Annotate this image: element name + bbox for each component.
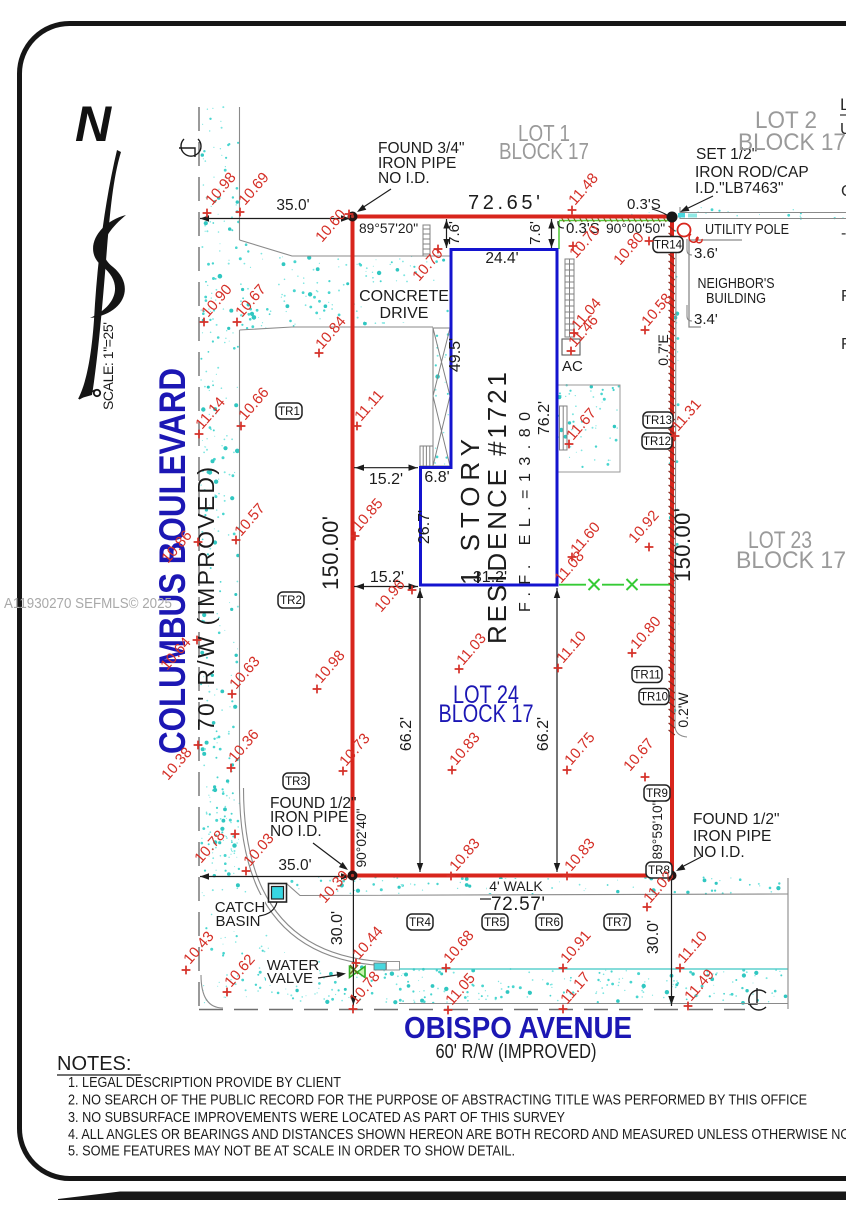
svg-text:72.57': 72.57' [491, 894, 545, 915]
svg-text:3.4': 3.4' [694, 311, 718, 328]
svg-text:TR11: TR11 [633, 670, 660, 682]
svg-text:15.2': 15.2' [369, 471, 403, 488]
svg-text:U: U [840, 121, 846, 138]
svg-text:TR5: TR5 [484, 917, 506, 929]
svg-text:6.8': 6.8' [424, 469, 449, 486]
svg-text:89°59'10": 89°59'10" [650, 800, 665, 859]
svg-text:35.0': 35.0' [276, 197, 309, 214]
svg-text:7.6': 7.6' [446, 221, 463, 245]
svg-text:66.2': 66.2' [535, 717, 552, 751]
svg-text:-: - [841, 225, 846, 242]
svg-text:35.0': 35.0' [278, 857, 311, 874]
svg-text:TR14: TR14 [654, 240, 683, 252]
svg-text:76.2': 76.2' [536, 401, 553, 435]
svg-text:TR3: TR3 [285, 776, 307, 788]
svg-text:0.7'E: 0.7'E [655, 334, 671, 365]
svg-text:IRON ROD/CAP: IRON ROD/CAP [695, 164, 809, 181]
svg-text:7.6': 7.6' [527, 221, 544, 245]
svg-text:CONCRETE: CONCRETE [359, 288, 449, 305]
svg-text:2. NO SEARCH OF THE PUBLIC REC: 2. NO SEARCH OF THE PUBLIC RECORD FOR TH… [68, 1093, 807, 1109]
svg-text:66.2': 66.2' [398, 717, 415, 751]
svg-text:NOTES:: NOTES: [57, 1053, 131, 1075]
svg-text:BLOCK 17: BLOCK 17 [439, 700, 534, 728]
svg-text:TR13: TR13 [644, 415, 672, 427]
svg-text:1. LEGAL DESCRIPTION PROVIDE B: 1. LEGAL DESCRIPTION PROVIDE BY CLIENT [68, 1075, 341, 1091]
svg-text:26.7': 26.7' [416, 510, 433, 544]
svg-text:NO I.D.: NO I.D. [270, 823, 322, 840]
svg-text:NO I.D.: NO I.D. [378, 170, 430, 187]
svg-text:TR12: TR12 [643, 436, 671, 448]
svg-text:C: C [841, 183, 846, 200]
svg-text:A11930270 SEFMLS© 2025: A11930270 SEFMLS© 2025 [4, 596, 172, 612]
svg-text:F: F [841, 336, 846, 353]
svg-text:4' WALK: 4' WALK [489, 878, 543, 894]
svg-text:0.2'W: 0.2'W [675, 692, 691, 728]
svg-text:TR10: TR10 [640, 692, 668, 704]
svg-text:30.0': 30.0' [329, 911, 346, 945]
svg-text:150.00': 150.00' [670, 508, 695, 582]
svg-text:BLOCK 17: BLOCK 17 [738, 129, 846, 156]
svg-text:BASIN: BASIN [215, 913, 260, 930]
svg-text:31.2': 31.2' [473, 569, 507, 586]
svg-text:24.4': 24.4' [485, 250, 518, 267]
svg-text:70' R/W (IMPROVED): 70' R/W (IMPROVED) [193, 467, 219, 731]
svg-text:TR6: TR6 [538, 917, 560, 929]
svg-text:89°57'20": 89°57'20" [359, 221, 418, 236]
svg-text:60' R/W (IMPROVED): 60' R/W (IMPROVED) [436, 1041, 597, 1063]
svg-text:5. SOME FEATURES MAY NOT BE AT: 5. SOME FEATURES MAY NOT BE AT SCALE IN … [68, 1144, 515, 1160]
svg-text:F: F [841, 288, 846, 305]
svg-text:TR7: TR7 [606, 917, 628, 929]
svg-text:3.6': 3.6' [694, 245, 718, 262]
svg-text:I.D."LB7463": I.D."LB7463" [695, 180, 784, 197]
svg-text:BLOCK 17: BLOCK 17 [736, 547, 846, 574]
svg-text:IRON PIPE: IRON PIPE [693, 828, 771, 845]
svg-text:SCALE: 1"=25': SCALE: 1"=25' [100, 322, 116, 410]
svg-text:UTILITY POLE: UTILITY POLE [705, 221, 789, 238]
svg-text:DRIVE: DRIVE [380, 305, 429, 322]
svg-text:VALVE: VALVE [267, 970, 313, 987]
svg-text:TR1: TR1 [278, 406, 300, 418]
svg-text:TR2: TR2 [280, 595, 302, 607]
svg-text:49.5': 49.5' [447, 338, 464, 372]
svg-text:LE: LE [840, 95, 846, 114]
svg-text:90°02'40": 90°02'40" [354, 808, 369, 867]
svg-text:OBISPO AVENUE: OBISPO AVENUE [404, 1010, 632, 1045]
svg-text:TR4: TR4 [409, 917, 431, 929]
svg-text:30.0': 30.0' [645, 920, 662, 954]
svg-text:TR9: TR9 [646, 788, 668, 800]
svg-text:150.00': 150.00' [318, 516, 343, 590]
svg-text:AC: AC [562, 358, 583, 375]
svg-text:BLOCK 17: BLOCK 17 [499, 138, 589, 164]
svg-text:FOUND 1/2": FOUND 1/2" [693, 811, 779, 828]
svg-text:3. NO SUBSURFACE IMPROVEMENTS: 3. NO SUBSURFACE IMPROVEMENTS WERE LOCAT… [68, 1110, 565, 1126]
svg-text:NO I.D.: NO I.D. [693, 844, 745, 861]
svg-text:4. ALL ANGLES OR BEARINGS AND: 4. ALL ANGLES OR BEARINGS AND DISTANCES … [68, 1127, 846, 1143]
svg-text:N: N [75, 96, 112, 152]
svg-text:BUILDING: BUILDING [706, 290, 766, 307]
